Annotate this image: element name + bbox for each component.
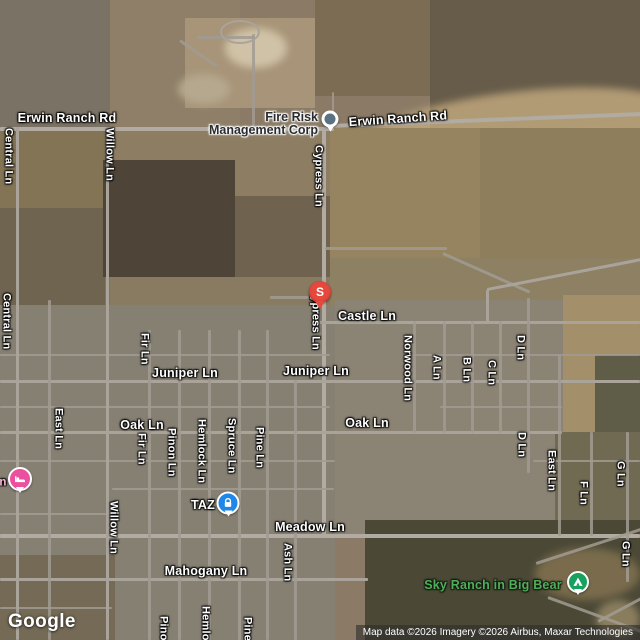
road-segment <box>0 380 640 383</box>
padlock-icon <box>223 498 234 509</box>
street-label-central-ln-north: Central Ln <box>3 128 14 184</box>
street-label-oak-ln-west: Oak Ln <box>120 419 164 432</box>
street-label-fir-ln-north: Fir Ln <box>139 333 150 365</box>
road-segment <box>106 127 109 640</box>
street-label-erwin-ranch-rd-west: Erwin Ranch Rd <box>18 112 117 125</box>
pin-dot <box>325 114 336 125</box>
street-label-hemlock-ln: Hemlock Ln <box>196 419 207 483</box>
street-label-willow-ln-south: Willow Ln <box>108 501 119 554</box>
street-label-c-ln: C Ln <box>486 360 497 385</box>
street-label-juniper-ln-east: Juniper Ln <box>283 365 349 378</box>
street-label-east-ln-west: East Ln <box>53 408 64 449</box>
terrain-patch <box>330 128 480 260</box>
street-label-g-ln-north: G Ln <box>615 461 626 487</box>
street-label-pine-ln-bottom: Pine Ln <box>242 617 253 640</box>
bed-icon <box>14 473 26 485</box>
street-label-oak-ln-east: Oak Ln <box>345 417 389 430</box>
map-attribution: Map data ©2026 Imagery ©2026 Airbus, Max… <box>356 625 640 640</box>
road-segment <box>16 127 19 640</box>
poi-label-line2: Management Corp <box>205 124 318 137</box>
road-segment <box>325 247 447 250</box>
campground-icon <box>572 576 584 588</box>
street-label-castle-ln: Castle Ln <box>338 310 396 323</box>
street-label-a-ln: A Ln <box>431 355 442 380</box>
campground-marker[interactable] <box>567 571 589 593</box>
road-segment <box>590 432 593 536</box>
street-label-d-ln-south: D Ln <box>516 432 527 457</box>
padlock-marker[interactable] <box>217 492 240 515</box>
street-label-spruce-ln: Spruce Ln <box>226 418 237 474</box>
terrain-patch <box>235 196 330 281</box>
s-pin-letter: S <box>316 285 324 299</box>
street-label-b-ln: B Ln <box>461 357 472 382</box>
road-segment <box>148 330 151 640</box>
poi-label-sky-ranch[interactable]: Sky Ranch in Big Bear <box>424 579 562 592</box>
poi-label-fire-risk-management-corp[interactable]: Fire Risk Management Corp <box>205 111 318 137</box>
road-segment <box>220 20 260 44</box>
street-label-willow-ln-north: Willow Ln <box>104 128 115 181</box>
terrain-patch <box>103 160 235 277</box>
street-label-mahogany-ln: Mahogany Ln <box>165 565 248 578</box>
road-segment <box>0 431 562 434</box>
street-label-fir-ln-south: Fir Ln <box>136 433 147 465</box>
street-label-east-ln-east: East Ln <box>546 450 557 491</box>
road-segment <box>266 330 269 640</box>
lodging-marker[interactable] <box>8 467 32 491</box>
poi-label-lodging-partial: n <box>0 477 7 489</box>
terrain-patch <box>178 74 230 104</box>
street-label-central-ln-south: Central Ln <box>1 293 12 349</box>
street-label-g-ln-south: G Ln <box>620 541 631 567</box>
road-segment <box>238 330 241 640</box>
street-label-ash-ln: Ash Ln <box>282 543 293 581</box>
road-segment <box>0 578 368 581</box>
satellite-map[interactable]: Erwin Ranch Rd Erwin Ranch Rd Castle Ln … <box>0 0 640 640</box>
generic-place-pin-icon[interactable] <box>322 111 339 128</box>
red-pin-icon[interactable]: S <box>309 281 331 303</box>
road-segment <box>558 355 561 536</box>
street-label-hemlock-ln-bottom: Hemlock Ln <box>200 606 211 640</box>
street-label-norwood-ln: Norwood Ln <box>402 335 413 401</box>
terrain-patch <box>595 355 640 440</box>
street-label-pinon-ln-bottom: Pinon Ln <box>158 616 169 640</box>
street-label-pinon-ln: Pinon Ln <box>166 428 177 477</box>
street-label-juniper-ln-west: Juniper Ln <box>152 367 218 380</box>
terrain-patch <box>0 0 110 128</box>
road-segment <box>294 380 297 640</box>
street-label-pine-ln: Pine Ln <box>254 427 265 468</box>
road-segment <box>48 300 51 640</box>
street-label-d-ln-north: D Ln <box>515 335 526 360</box>
road-segment <box>486 290 489 322</box>
terrain-patch <box>480 128 640 260</box>
street-label-f-ln: F Ln <box>578 481 589 505</box>
road-segment <box>499 321 502 433</box>
road-segment <box>443 321 446 433</box>
poi-label-taz[interactable]: TAZ <box>191 499 215 512</box>
street-label-meadow-ln: Meadow Ln <box>275 521 345 534</box>
terrain-patch <box>110 277 330 307</box>
google-logo[interactable]: Google <box>8 611 76 633</box>
terrain-patch <box>315 0 433 96</box>
road-segment <box>112 488 334 490</box>
street-label-cypress-ln-north: Cypress Ln <box>313 145 324 207</box>
road-segment <box>0 534 640 538</box>
